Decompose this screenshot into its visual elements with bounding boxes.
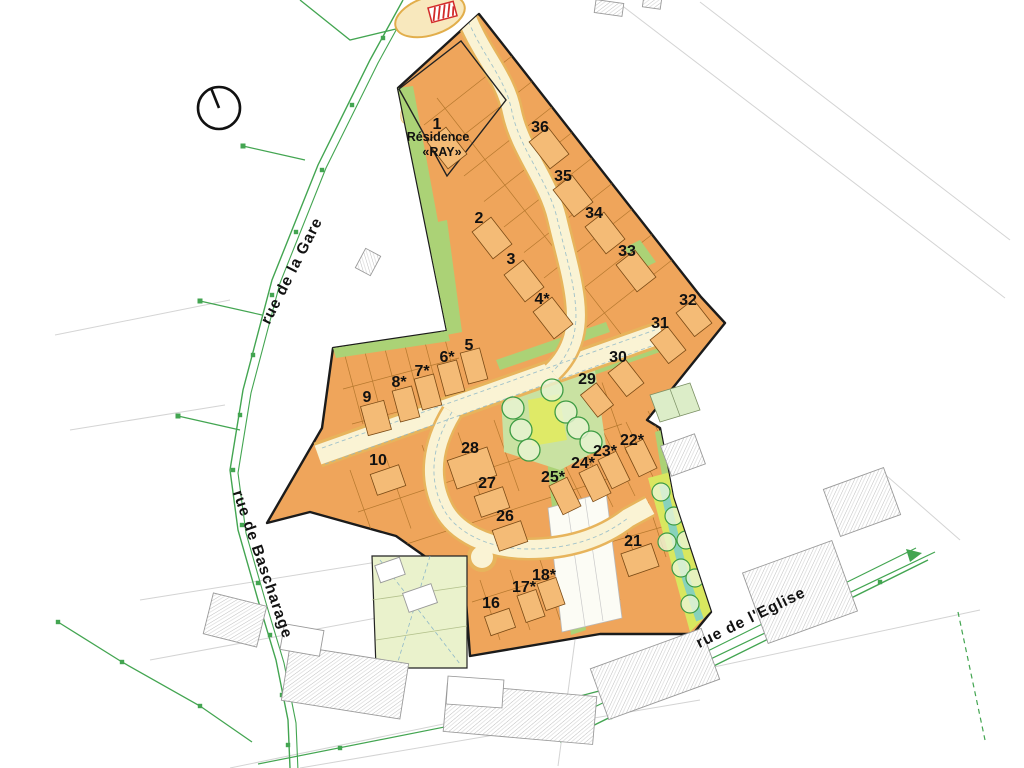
lot-label-23: 23* <box>593 443 618 460</box>
lot-label-30: 30 <box>609 349 627 366</box>
lot-label-26: 26 <box>496 508 514 525</box>
lot-label-21: 21 <box>624 533 642 550</box>
lot-label-33: 33 <box>618 243 636 260</box>
lot-label-2: 2 <box>475 210 484 227</box>
lot-label-16: 16 <box>482 595 500 612</box>
lot-label-9: 9 <box>363 389 372 406</box>
lot-label-17: 17* <box>512 579 537 596</box>
lot-label-36: 36 <box>531 119 549 136</box>
lot-label-3: 3 <box>507 251 516 268</box>
lot-label-32: 32 <box>679 292 697 309</box>
lot-label-22: 22* <box>620 432 645 449</box>
lot-label-6: 6* <box>439 349 455 366</box>
lot-label-29: 29 <box>578 371 596 388</box>
lot-label-28: 28 <box>461 440 479 457</box>
lot-label-8: 8* <box>391 374 407 391</box>
lot-label-7: 7* <box>414 363 430 380</box>
lot-label-27: 27 <box>478 475 496 492</box>
lot-label-24: 24* <box>571 455 596 472</box>
site-plan-map: rue de la Garerue de Bascharagerue de l'… <box>0 0 1024 768</box>
lot-label-35: 35 <box>554 168 572 185</box>
lot-label-5: 5 <box>465 337 474 354</box>
site-plan-page: rue de la Garerue de Bascharagerue de l'… <box>0 0 1024 768</box>
lot-label-10: 10 <box>369 452 387 469</box>
lot-label-25: 25* <box>541 469 566 486</box>
lot-label-31: 31 <box>651 315 669 332</box>
lot-label-34: 34 <box>585 205 603 222</box>
residence-name-2: «RAY» <box>422 145 461 159</box>
residence-name: Résidence <box>407 130 470 144</box>
lot-label-4: 4* <box>534 291 550 308</box>
